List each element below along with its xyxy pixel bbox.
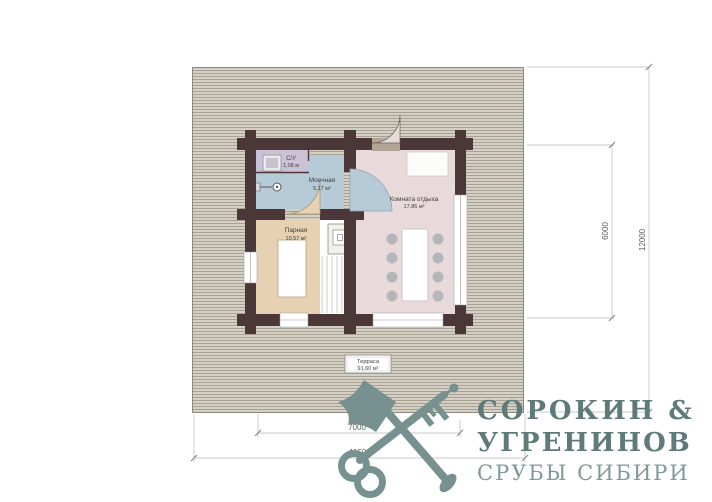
terrace-area: 91,60 м²: [358, 366, 379, 372]
room-steam-name: Парная: [285, 227, 308, 234]
logo-mark: [324, 378, 482, 502]
dim-6000: 6000: [601, 222, 610, 240]
room-su-area: 1,08 м: [283, 163, 299, 169]
shower-head-dot: [276, 186, 278, 188]
sauna-bench: [278, 240, 306, 297]
wall-left: [245, 130, 256, 334]
logo-tagline: СРУБЫ СИБИРИ: [477, 461, 690, 485]
wall-middle-upper: [344, 130, 356, 172]
room-wash-name: Моечная: [309, 177, 336, 184]
page: С/У 1,08 м Моечная 5,17 м² Парная 10,57 …: [0, 0, 712, 502]
dining-table: [402, 229, 428, 301]
wall-middle-lower: [344, 212, 356, 334]
room-lounge-name: Комната отдыха: [390, 196, 439, 203]
sink-basin: [266, 158, 278, 168]
room-steam-area: 10,57 м²: [286, 236, 307, 242]
wall-right-upper: [455, 130, 466, 195]
room-lounge-area: 17,86 м²: [404, 204, 425, 210]
dim-12000: 12000: [638, 228, 647, 251]
logo-company-line1: СОРОКИН &: [477, 396, 695, 426]
wall-right-lower: [455, 305, 466, 334]
axe-key-icon: [338, 380, 460, 495]
partition-left: [237, 209, 285, 220]
room-su-name: С/У: [286, 156, 296, 162]
room-wash-area: 5,17 м²: [313, 186, 331, 192]
cabinet: [407, 152, 448, 176]
terrace-name: Терраса: [357, 359, 380, 365]
logo-company-line2: УГРЕНИНОВ: [477, 428, 692, 458]
